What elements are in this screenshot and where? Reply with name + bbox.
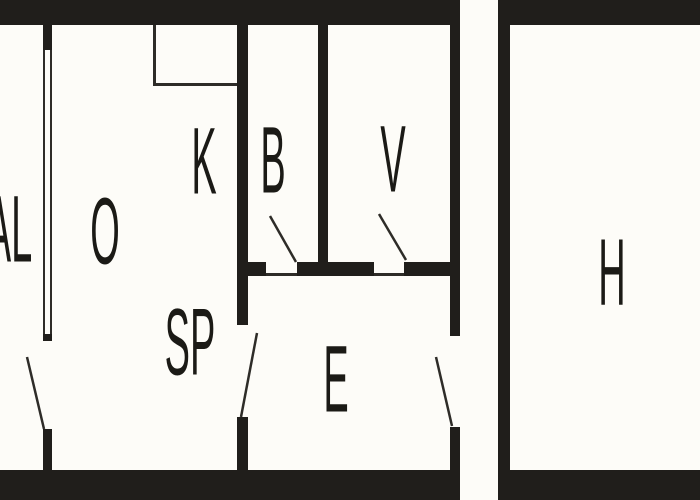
e-exterior-door-swing-line (436, 357, 452, 426)
room-label-e: E (323, 333, 348, 428)
al-door-swing-line (27, 357, 44, 429)
b-door-swing-line (270, 216, 296, 262)
sp-e-door-swing-line (241, 333, 257, 417)
floor-plan: AL O K B V SP E H (0, 0, 700, 500)
room-label-h: H (598, 226, 625, 321)
room-label-b: B (260, 114, 285, 209)
room-label-o: O (90, 185, 120, 280)
v-door-swing-line (379, 214, 406, 260)
room-label-k: K (191, 115, 216, 210)
room-label-al: AL (0, 183, 32, 278)
room-label-sp: SP (165, 296, 216, 391)
room-label-v: V (380, 113, 405, 208)
